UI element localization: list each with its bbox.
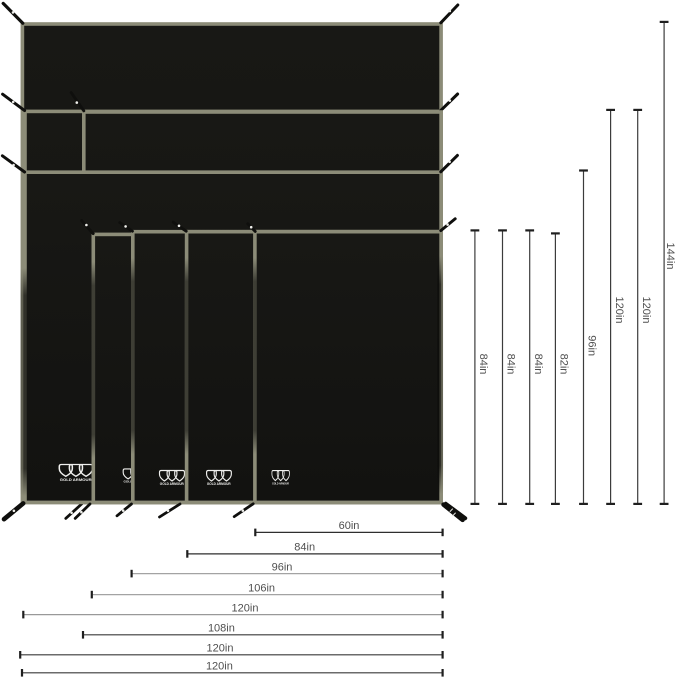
svg-text:108in: 108in [208,623,235,635]
svg-text:84in: 84in [532,354,544,375]
svg-text:96in: 96in [272,561,293,573]
svg-text:84in: 84in [477,354,489,375]
svg-text:144in: 144in [664,243,676,270]
svg-text:106in: 106in [248,582,275,594]
svg-text:120in: 120in [207,643,234,655]
svg-text:120in: 120in [232,602,259,614]
svg-text:82in: 82in [558,354,570,375]
svg-text:84in: 84in [505,354,517,375]
svg-text:120in: 120in [640,297,652,324]
svg-text:60in: 60in [339,520,360,532]
svg-text:84in: 84in [294,542,315,554]
svg-text:120in: 120in [613,297,625,324]
svg-text:120in: 120in [206,661,233,673]
svg-text:96in: 96in [586,335,598,356]
